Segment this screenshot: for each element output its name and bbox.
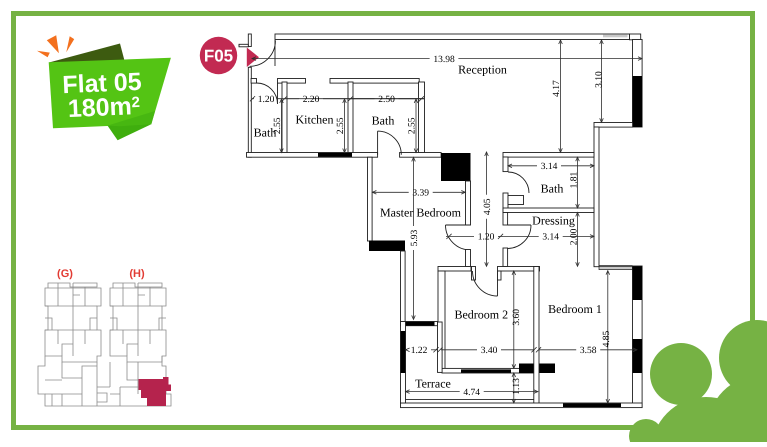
- svg-text:4.05: 4.05: [483, 198, 493, 215]
- svg-text:1.81: 1.81: [570, 171, 580, 188]
- svg-text:Kitchen: Kitchen: [296, 113, 334, 127]
- svg-text:2.50: 2.50: [378, 95, 395, 105]
- svg-text:Dressing: Dressing: [532, 214, 575, 228]
- svg-text:Bedroom 2: Bedroom 2: [454, 308, 508, 322]
- svg-text:3.14: 3.14: [541, 162, 558, 172]
- svg-text:Terrace: Terrace: [415, 377, 451, 391]
- svg-text:2.55: 2.55: [336, 117, 346, 134]
- svg-text:3.58: 3.58: [580, 346, 597, 356]
- svg-text:Reception: Reception: [458, 63, 507, 77]
- svg-text:4.74: 4.74: [463, 388, 480, 398]
- svg-text:Bath: Bath: [541, 182, 564, 196]
- svg-text:(G): (G): [57, 268, 73, 280]
- svg-text:Bath: Bath: [254, 126, 277, 140]
- svg-text:4.85: 4.85: [602, 330, 612, 347]
- svg-text:3.14: 3.14: [542, 233, 559, 243]
- svg-text:1.22: 1.22: [411, 346, 428, 356]
- svg-text:Bath: Bath: [372, 114, 395, 128]
- svg-text:5.93: 5.93: [410, 229, 420, 246]
- svg-text:2.20: 2.20: [303, 95, 320, 105]
- svg-text:180m2: 180m2: [67, 92, 140, 123]
- svg-text:3.40: 3.40: [481, 346, 498, 356]
- svg-text:2.55: 2.55: [408, 117, 418, 134]
- svg-text:Bedroom 1: Bedroom 1: [548, 302, 602, 316]
- svg-text:(H): (H): [129, 268, 145, 280]
- svg-text:2.00: 2.00: [569, 228, 579, 245]
- svg-text:1.20: 1.20: [258, 95, 275, 105]
- svg-text:F05: F05: [204, 47, 233, 66]
- svg-text:13.98: 13.98: [433, 55, 455, 65]
- svg-text:Master Bedroom: Master Bedroom: [380, 206, 462, 220]
- svg-text:3.60: 3.60: [512, 309, 522, 326]
- svg-text:4.17: 4.17: [552, 80, 562, 97]
- svg-text:3.10: 3.10: [594, 71, 604, 88]
- svg-text:1.13: 1.13: [512, 378, 522, 395]
- svg-text:3.39: 3.39: [412, 189, 429, 199]
- svg-text:1.20: 1.20: [478, 233, 495, 243]
